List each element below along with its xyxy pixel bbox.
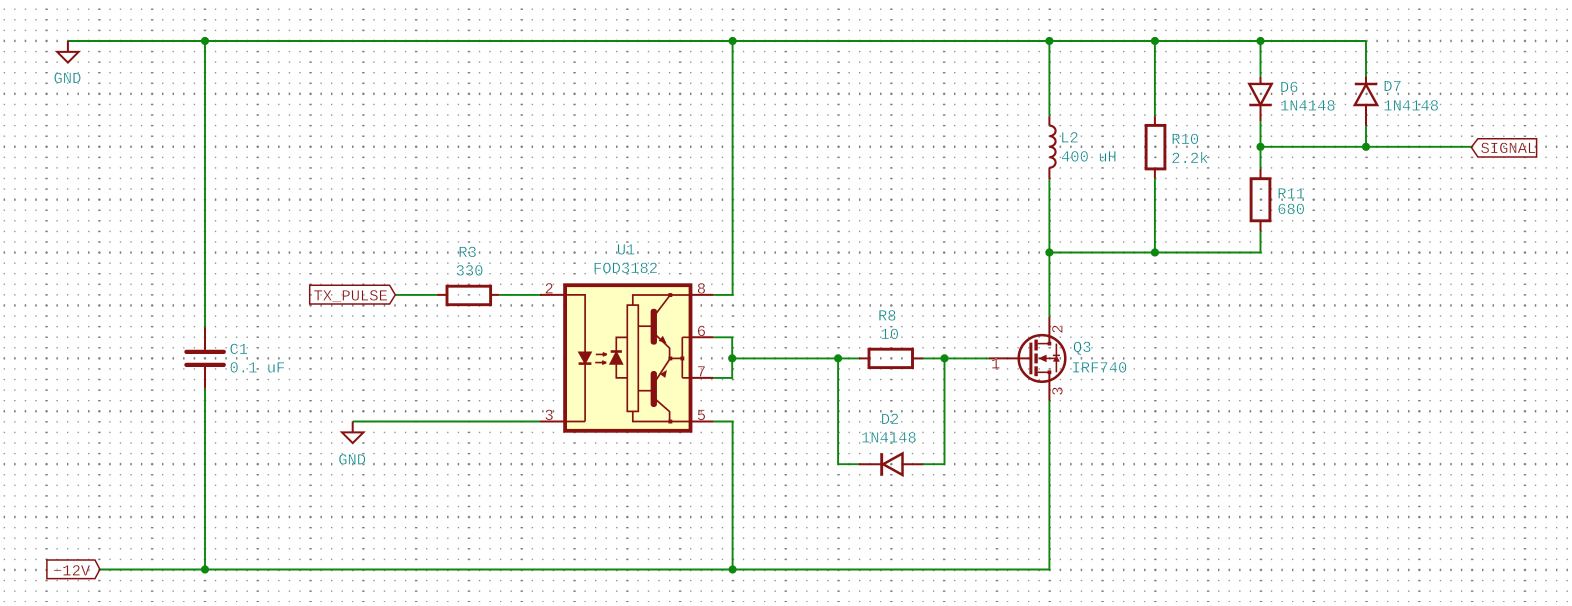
svg-text:IRF740: IRF740 bbox=[1072, 360, 1128, 378]
svg-text:GND: GND bbox=[338, 451, 366, 469]
svg-text:Q3: Q3 bbox=[1073, 339, 1092, 357]
svg-text:1: 1 bbox=[991, 356, 1000, 374]
svg-text:400 uH: 400 uH bbox=[1061, 148, 1117, 166]
svg-text:D2: D2 bbox=[881, 411, 900, 429]
svg-text:L2: L2 bbox=[1060, 130, 1079, 148]
svg-text:1N4148: 1N4148 bbox=[1383, 97, 1439, 115]
svg-text:FOD3182: FOD3182 bbox=[593, 260, 658, 278]
svg-text:680: 680 bbox=[1277, 201, 1305, 219]
svg-text:10: 10 bbox=[880, 326, 899, 344]
svg-text:−12V: −12V bbox=[53, 562, 91, 580]
svg-text:R8: R8 bbox=[878, 308, 897, 326]
svg-text:5: 5 bbox=[697, 407, 706, 425]
svg-text:7: 7 bbox=[697, 364, 706, 382]
svg-text:R3: R3 bbox=[458, 244, 477, 262]
svg-text:D6: D6 bbox=[1280, 79, 1299, 97]
svg-text:TX_PULSE: TX_PULSE bbox=[314, 288, 388, 306]
svg-text:U1: U1 bbox=[617, 242, 636, 260]
svg-text:R10: R10 bbox=[1171, 131, 1199, 149]
svg-text:8: 8 bbox=[697, 281, 706, 299]
svg-text:GND: GND bbox=[54, 70, 82, 88]
svg-text:1N4148: 1N4148 bbox=[861, 429, 917, 447]
svg-text:0.1 uF: 0.1 uF bbox=[230, 360, 286, 378]
svg-text:3: 3 bbox=[1050, 386, 1068, 395]
svg-text:3: 3 bbox=[545, 407, 554, 425]
svg-text:2.2k: 2.2k bbox=[1171, 150, 1208, 168]
svg-text:2: 2 bbox=[545, 281, 554, 299]
svg-text:SIGNAL: SIGNAL bbox=[1481, 140, 1537, 158]
svg-text:C1: C1 bbox=[230, 341, 249, 359]
svg-text:1N4148: 1N4148 bbox=[1280, 97, 1336, 115]
svg-text:330: 330 bbox=[456, 262, 484, 280]
svg-text:6: 6 bbox=[697, 323, 706, 341]
svg-text:D7: D7 bbox=[1383, 78, 1402, 96]
svg-text:2: 2 bbox=[1050, 324, 1068, 333]
